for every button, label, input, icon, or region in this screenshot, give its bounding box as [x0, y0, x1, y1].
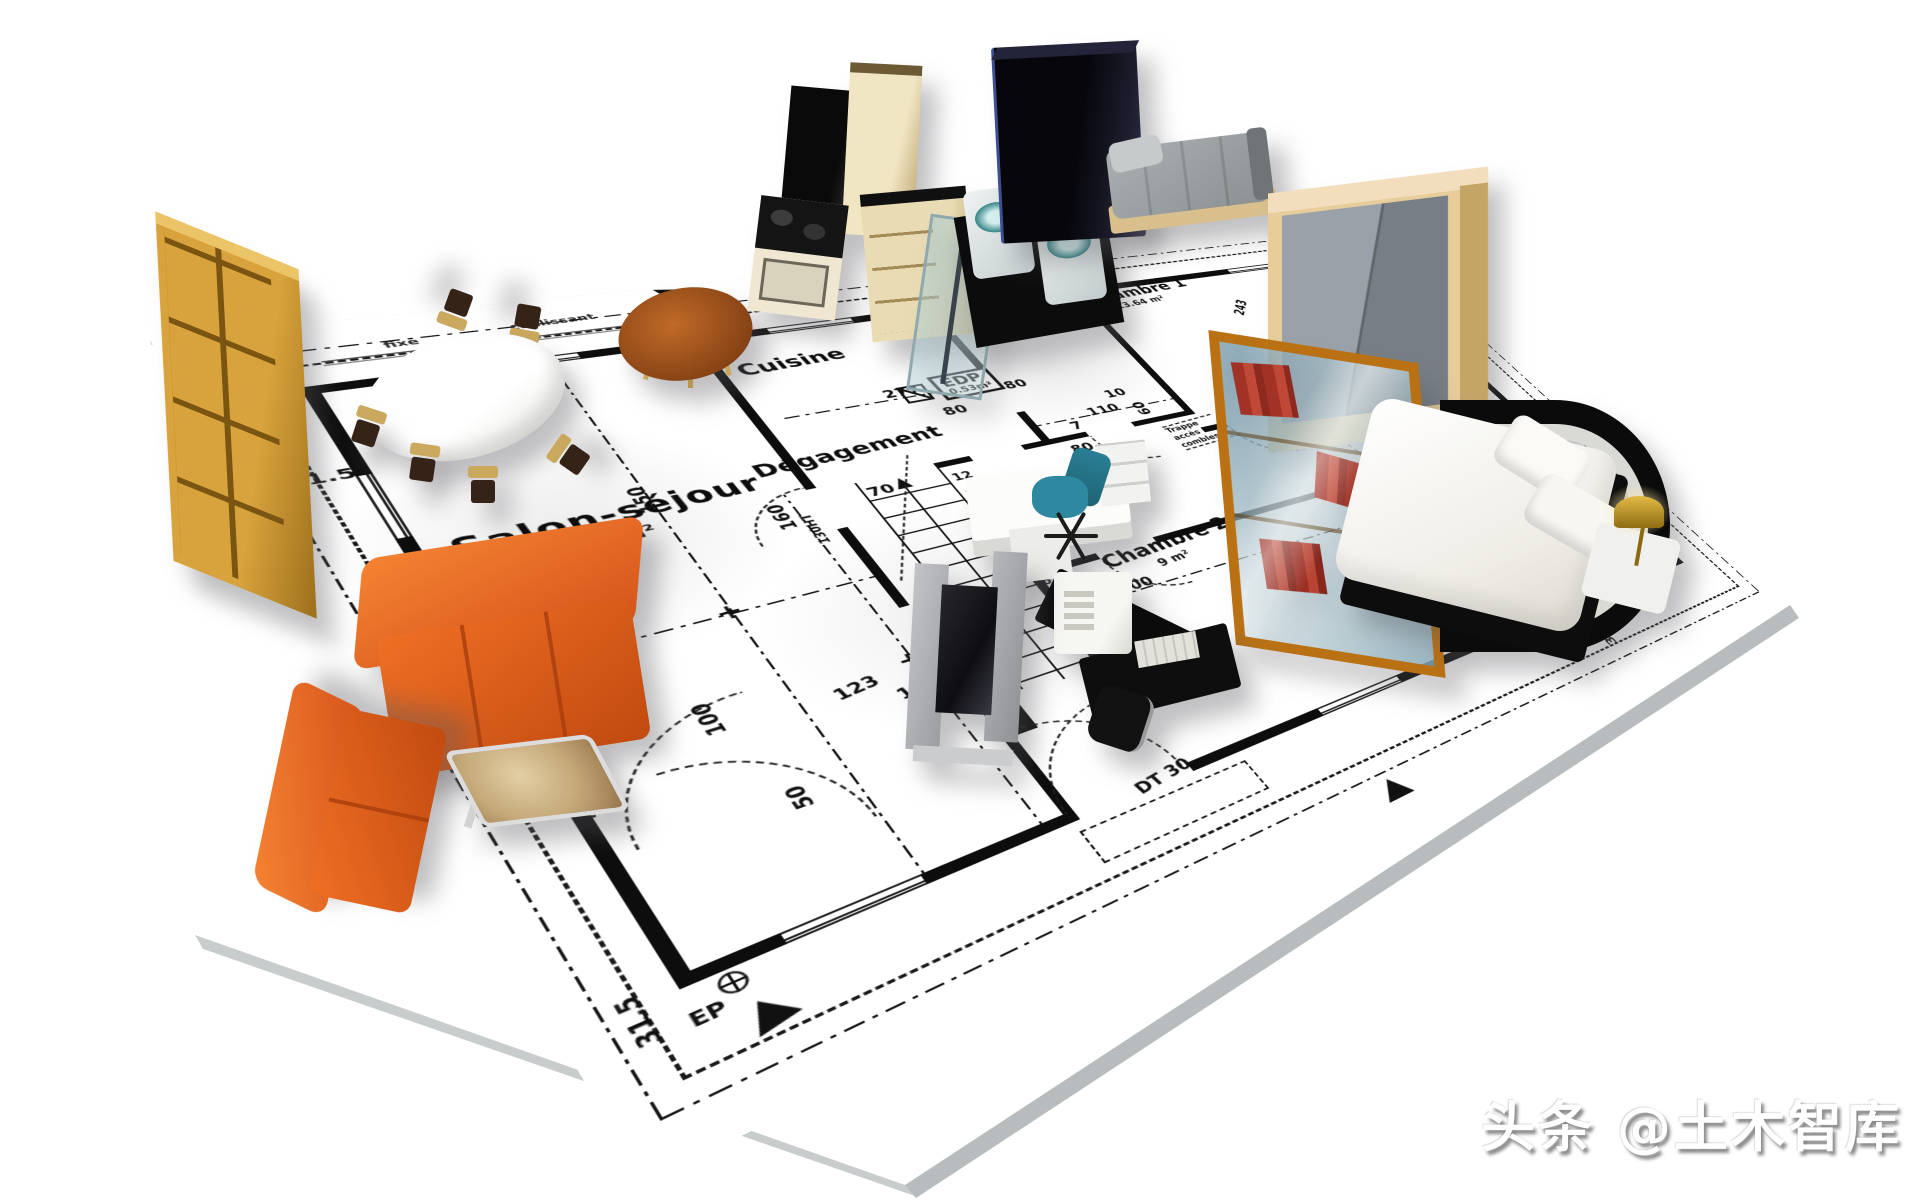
watermark: 头条 @土木智库: [1481, 1083, 1902, 1162]
pc-vents: [1064, 586, 1094, 630]
office-chair-seat: [1032, 476, 1088, 518]
bookshelf-shelves: [164, 223, 288, 600]
dining-chair: [468, 466, 498, 508]
burner: [802, 223, 826, 242]
pc-tower: [1054, 572, 1132, 654]
cooktop: [755, 195, 849, 259]
computer-desk-group: [1028, 572, 1243, 767]
dining-table: [362, 336, 572, 466]
scene: + + +: [0, 0, 1920, 1200]
tv-base: [913, 745, 1014, 766]
kitchen-cooktop-unit: [747, 195, 848, 321]
kitchen-round-table: [618, 288, 758, 388]
cushion-divider: [543, 611, 569, 751]
kitchen-table-top: [611, 277, 760, 391]
dining-chair: [405, 442, 441, 488]
bookshelf: [155, 211, 317, 618]
wardrobe-side-face: [1460, 182, 1488, 415]
burner: [770, 208, 794, 227]
tv-unit: [904, 547, 1035, 775]
coffee-table: [462, 736, 622, 840]
bedside-lamp: [1614, 496, 1664, 528]
double-bed-group: [1350, 400, 1700, 672]
oven-door: [759, 258, 830, 308]
office-chair-base: [1044, 518, 1100, 554]
gray-daybed: [1100, 116, 1285, 252]
cushion-divider: [328, 797, 429, 822]
dining-table-top: [350, 313, 578, 481]
tv-screen: [935, 584, 998, 715]
